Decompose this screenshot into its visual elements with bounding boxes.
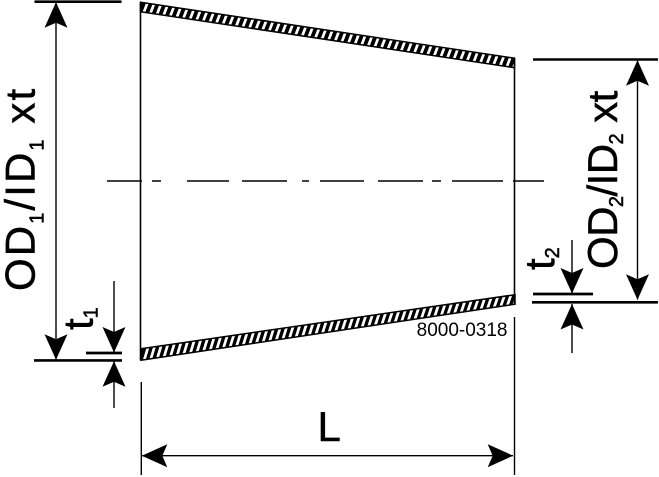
svg-text:8000-0318: 8000-0318 [417,320,508,341]
svg-text:L: L [318,403,341,450]
svg-text:OD1/ID1 xt: OD1/ID1 xt [0,87,49,291]
svg-text:OD2/ID2 xt: OD2/ID2 xt [579,90,628,269]
